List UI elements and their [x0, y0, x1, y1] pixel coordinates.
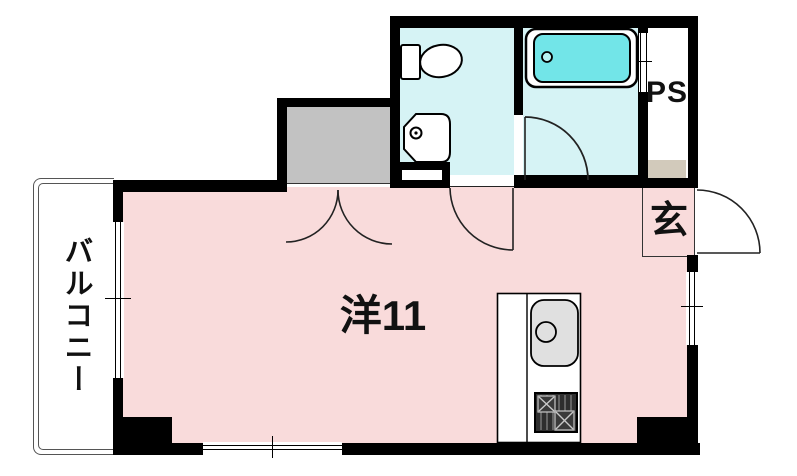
wall-under-bathroom: [514, 175, 638, 188]
wall-left-upper: [113, 180, 123, 223]
bath-ps-vent-tick: [635, 61, 652, 62]
side-window-tick: [681, 306, 703, 307]
balcony-window-glass: [115, 222, 121, 378]
wall-top-sanitary: [390, 16, 698, 28]
balcony-window-tick: [105, 298, 131, 299]
bathroom-floor: [523, 28, 638, 178]
washbasin-counter-gap: [402, 170, 442, 180]
wall-outer-right-top: [688, 18, 698, 188]
side-window-glass: [689, 272, 695, 345]
closet-floor: [287, 107, 390, 184]
wall-main-top: [113, 180, 287, 192]
floor-plan: 洋11 玄 PS バルコニー: [0, 0, 797, 476]
wall-closet-left: [277, 98, 287, 184]
wall-under-pipe-space: [637, 178, 698, 188]
toilet-door-threshold: [450, 186, 514, 187]
pipe-space-label: PS: [645, 76, 689, 110]
entrance-label: 玄: [648, 198, 690, 244]
wall-closet-top: [277, 98, 400, 107]
wall-bottom-left: [113, 443, 203, 455]
side-window: [686, 272, 698, 345]
bottom-window-tick: [272, 436, 273, 458]
main-room-label: 洋11: [333, 291, 433, 341]
wall-divider: [514, 16, 523, 115]
toilet-room-floor: [400, 28, 514, 175]
entrance-door-arc: [697, 190, 760, 253]
balcony-window: [112, 222, 124, 378]
wall-corner-bottom-right: [637, 417, 698, 455]
balcony-label: バルコニー: [56, 226, 94, 406]
wall-right-mid: [687, 255, 698, 272]
